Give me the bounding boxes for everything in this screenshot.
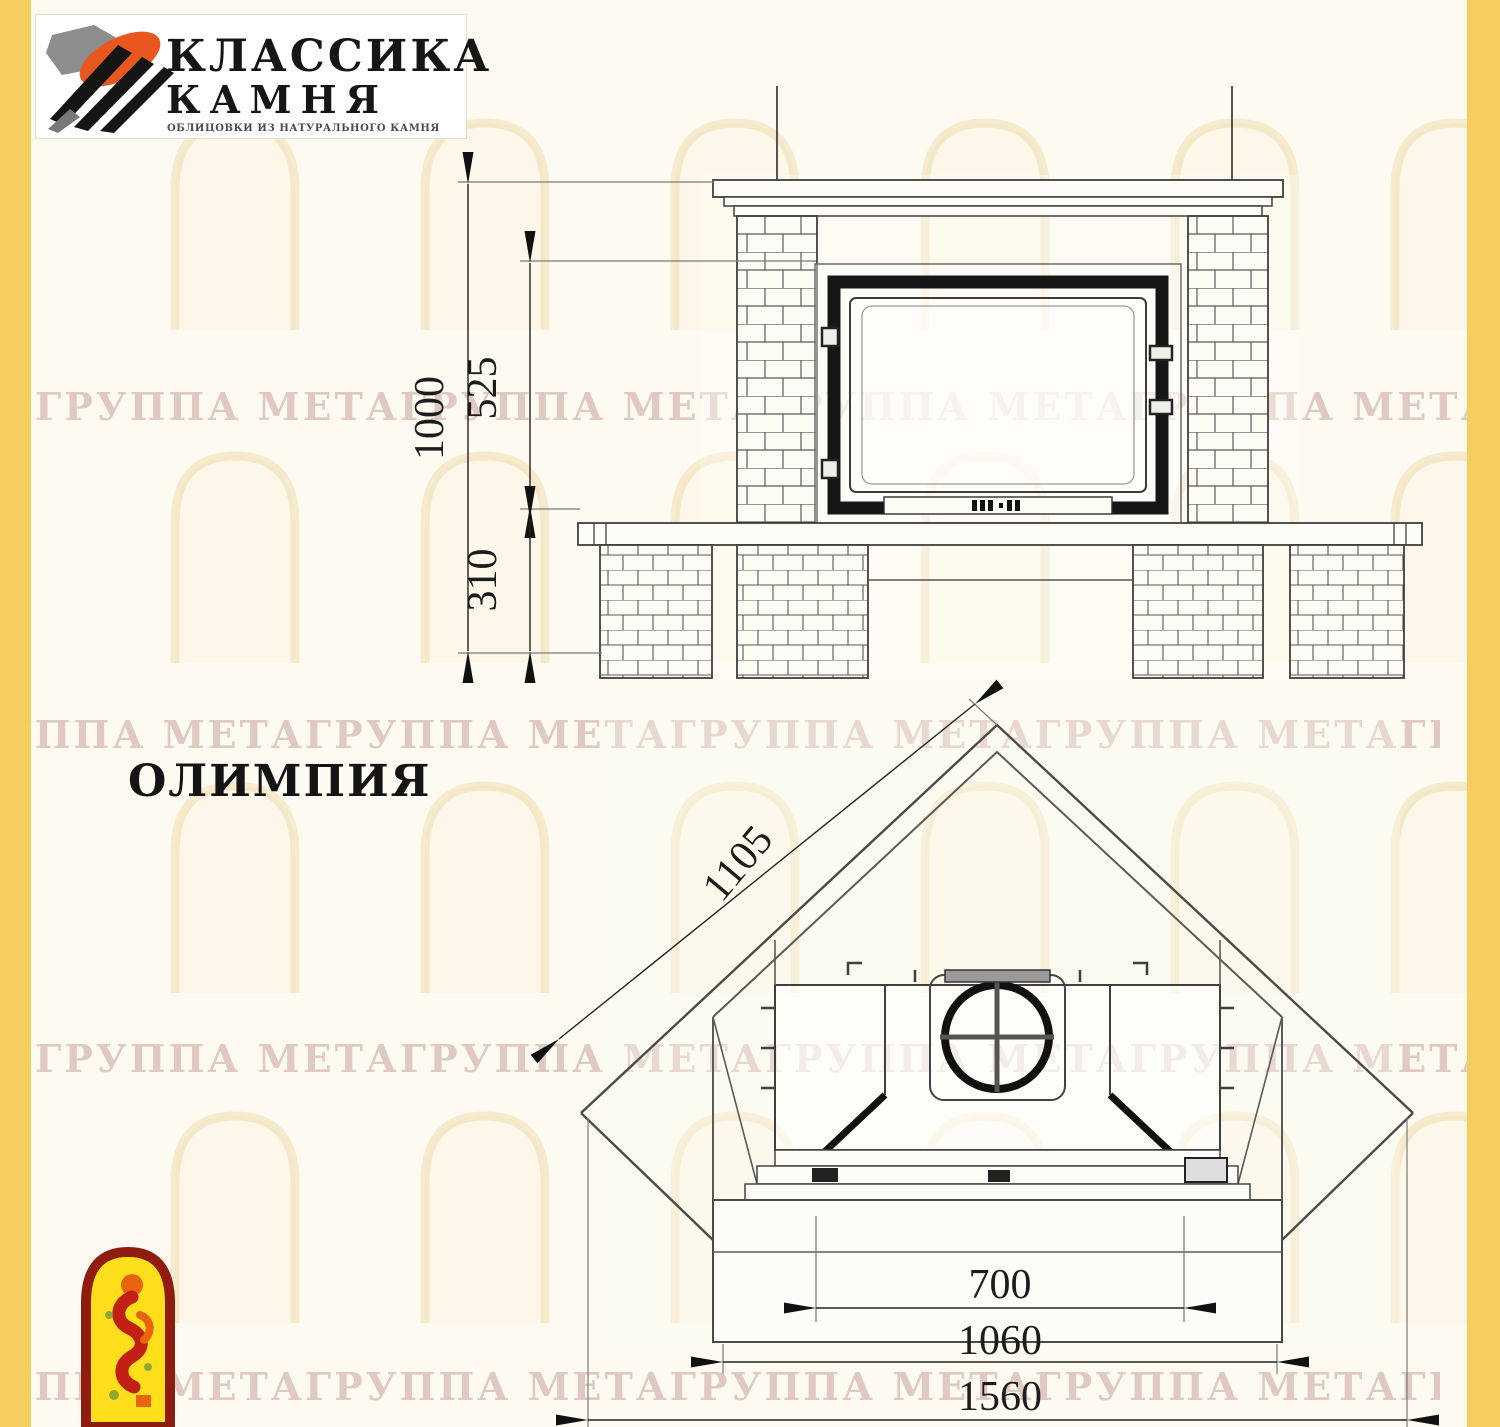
base-pier [1133,545,1263,678]
model-title: ОЛИМПИЯ [128,756,431,807]
brick-column-right [1188,216,1268,523]
door-handle [1150,400,1172,414]
flue-collar [945,970,1050,982]
dim-bench-width: 1060 [958,1318,1042,1364]
base-pier [600,545,712,678]
dim-total-width: 1560 [958,1374,1042,1420]
page: ГРУППА МЕТАГРУППА МЕТАГРУППА МЕТАГРУППА … [0,0,1500,1427]
logo-tagline: ОБЛИЦОВКИ ИЗ НАТУРАЛЬНОГО КАМНЯ [167,123,440,134]
front-elevation-drawing [578,86,1422,680]
chimney-pipes [777,86,1232,181]
firebox-insert [815,264,1181,523]
right-edge-bar [1467,0,1500,1427]
dim-base-height: 310 [460,549,506,612]
left-edge-bar [0,0,31,1427]
dim-total-height: 1000 [407,376,453,460]
company-logo: КЛАССИКА КАМНЯ ОБЛИЦОВКИ ИЗ НАТУРАЛЬНОГО… [35,14,467,139]
dim-firebox-height: 525 [460,357,506,420]
firebox-glass [862,306,1134,484]
logo-title-line1: КЛАССИКА [166,31,492,82]
dim-firebox-width: 700 [969,1262,1032,1308]
stone-logo-icon [42,21,182,133]
door-hinge [822,460,838,478]
mantel-shelf [713,180,1283,216]
arch-window-icon [80,1245,176,1427]
door-handle [1150,346,1172,360]
logo-title-line2: КАМНЯ [166,77,388,122]
hearth-bench [578,523,1422,545]
base-pier [1290,545,1404,678]
brick-column-left [737,216,817,523]
door-hinge [822,328,838,346]
plan-view-drawing [581,720,1413,1345]
technical-drawing: 1000 525 310 [0,0,1500,1427]
plan-front-plates [745,1150,1250,1200]
vent-grille [884,497,1112,514]
base-pier [737,545,868,678]
